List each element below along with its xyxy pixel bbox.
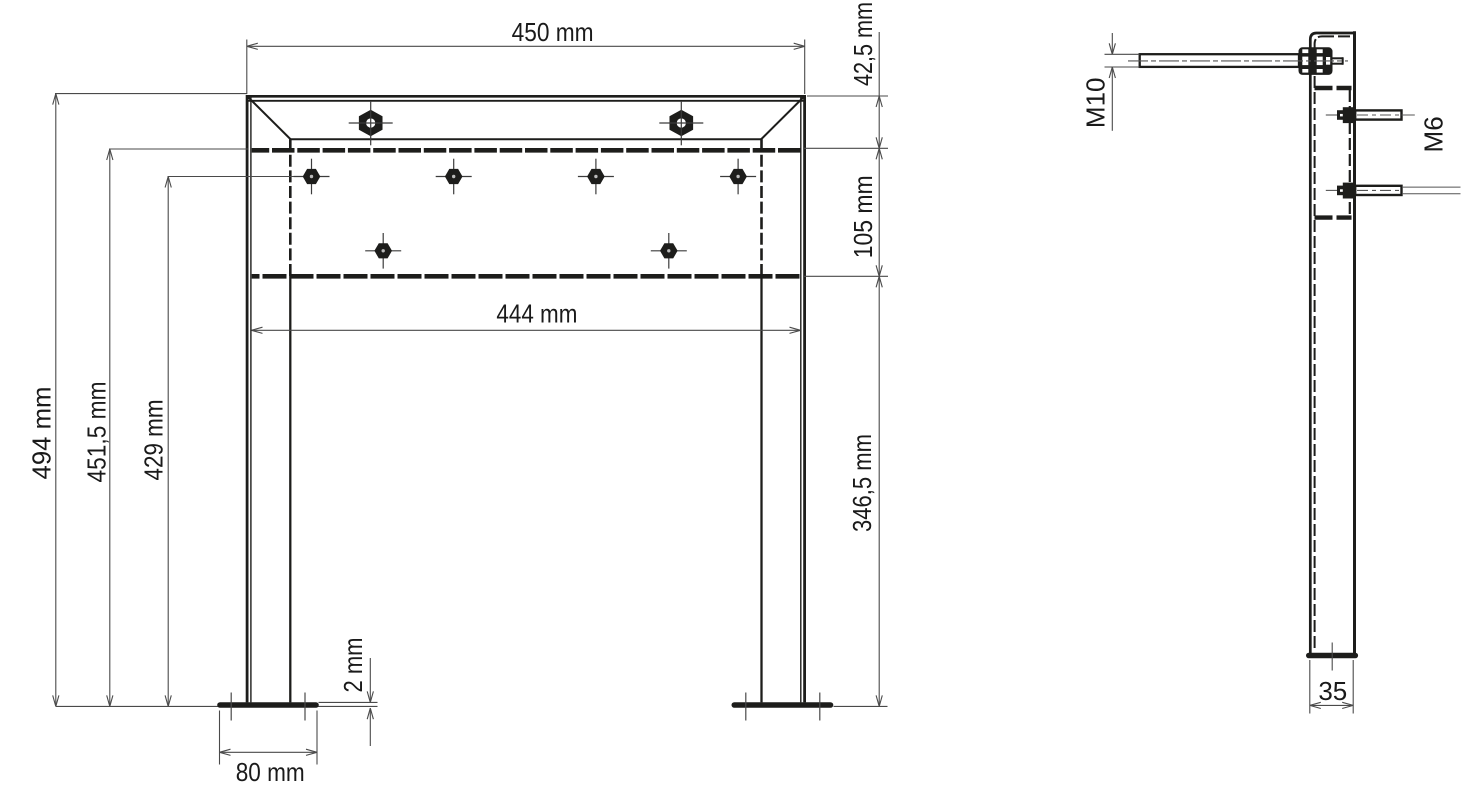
svg-text:451,5 mm: 451,5 mm [82,382,112,483]
svg-text:429 mm: 429 mm [139,400,169,481]
svg-text:M10: M10 [1081,78,1111,129]
svg-text:346,5 mm: 346,5 mm [847,434,877,532]
svg-text:444 mm: 444 mm [496,299,577,329]
svg-text:M6: M6 [1419,116,1449,152]
svg-text:2 mm: 2 mm [338,638,368,693]
svg-text:42,5 mm: 42,5 mm [848,2,878,86]
svg-text:494 mm: 494 mm [27,387,57,480]
svg-text:35: 35 [1318,676,1347,706]
svg-text:105 mm: 105 mm [848,175,878,258]
svg-text:80 mm: 80 mm [236,757,305,787]
svg-text:450 mm: 450 mm [512,17,594,47]
